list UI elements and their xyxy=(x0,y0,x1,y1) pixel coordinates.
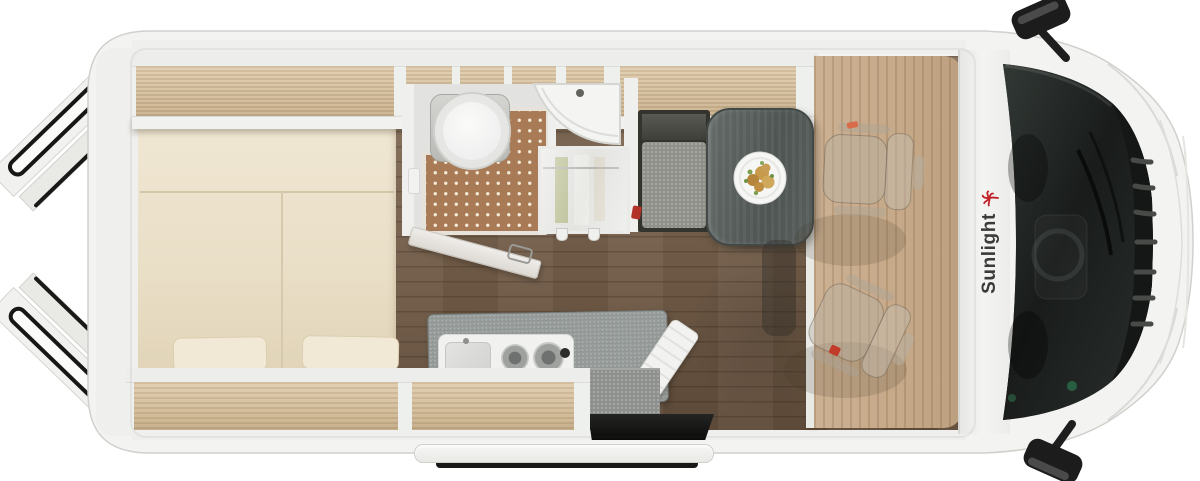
console-ghost xyxy=(1035,215,1087,299)
overhead-shelf-rear xyxy=(136,66,394,118)
dashboard-ghost xyxy=(1008,134,1048,202)
washbasin xyxy=(524,78,628,156)
bench-backrest xyxy=(642,114,706,140)
bed-pillow xyxy=(302,335,400,371)
cab-seat-passenger xyxy=(822,122,927,219)
entry-doorwell xyxy=(588,414,714,440)
shelf-top-strip xyxy=(132,52,814,67)
seat-base-shadow xyxy=(762,240,796,336)
seat-shadow xyxy=(794,214,906,266)
lower-shelf-band xyxy=(126,368,590,430)
kitchen-side-panel xyxy=(588,368,660,416)
toilet xyxy=(433,92,511,170)
wardrobe xyxy=(538,146,630,234)
faucet-icon xyxy=(576,89,584,97)
wardrobe-translucent-panel xyxy=(541,149,627,231)
bed-seam-vertical xyxy=(281,192,283,372)
dashboard-ghost xyxy=(1008,311,1048,379)
toilet-flush-panel xyxy=(408,168,420,194)
entry-step xyxy=(414,444,714,463)
bench-cushion xyxy=(642,142,706,228)
shelf-top-strip xyxy=(126,368,590,383)
bed-seam-horizontal xyxy=(140,191,394,193)
wardrobe-hook xyxy=(556,228,568,241)
lower-shelf-kitchen xyxy=(412,382,574,430)
faucet-icon xyxy=(463,338,469,344)
cab-green-detail xyxy=(1067,381,1077,391)
floorplan-canvas: Sunlight xyxy=(0,0,1200,481)
bathroom-wall-left xyxy=(402,84,414,236)
cab-green-detail xyxy=(1008,394,1016,402)
hob-knob-icon xyxy=(560,348,570,358)
lower-shelf-bed xyxy=(134,382,398,430)
rear-bed xyxy=(138,126,396,372)
wardrobe-hook xyxy=(588,228,600,241)
dinette-bench xyxy=(638,110,710,232)
cab-front xyxy=(995,50,1200,435)
